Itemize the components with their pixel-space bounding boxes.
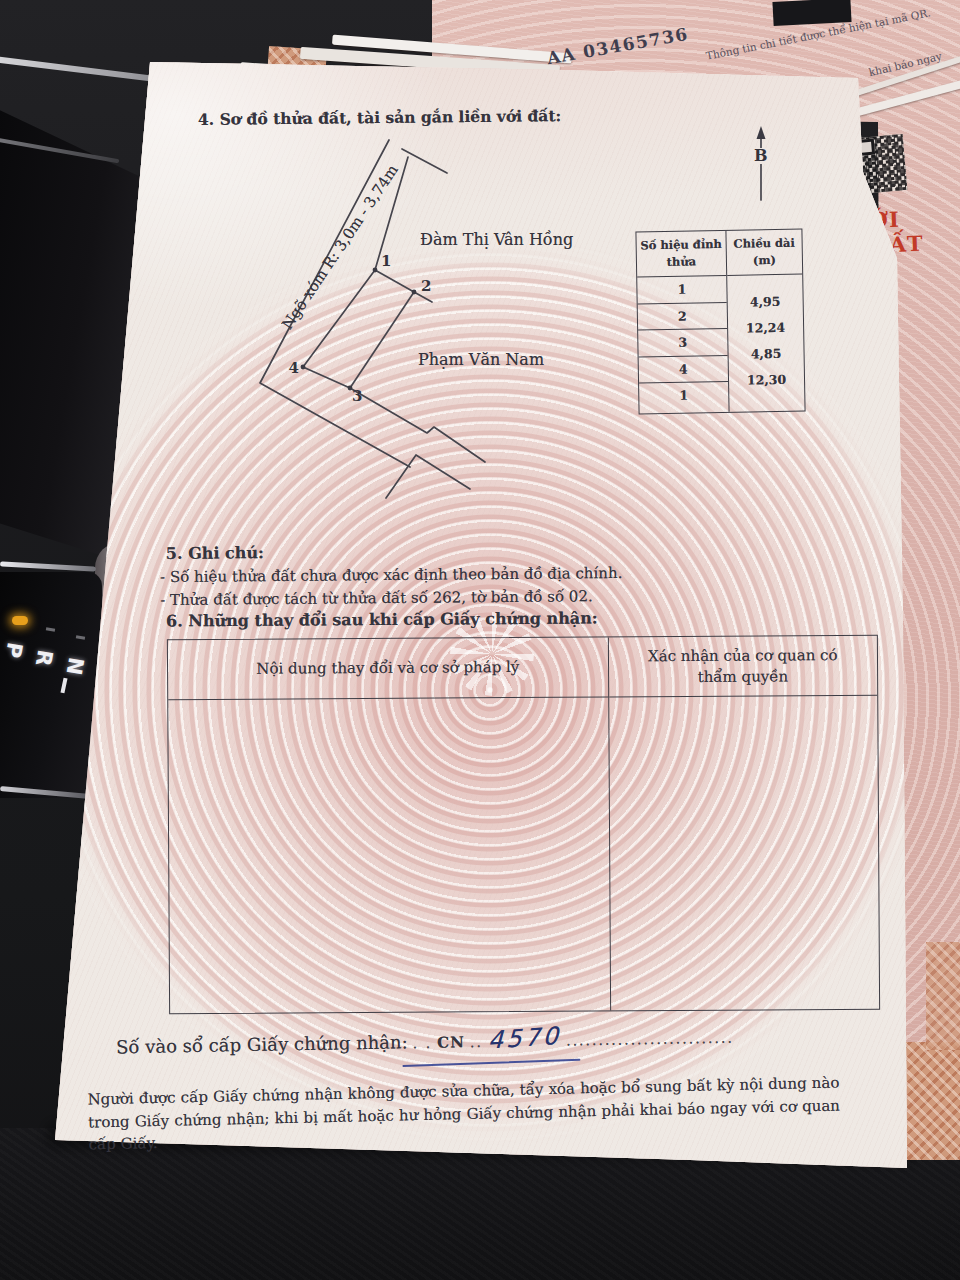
registry-label: Số vào sổ cấp Giấy chứng nhận: [116,1031,408,1057]
background-gap [772,0,851,26]
length-value: 12,30 [729,371,804,390]
registry-dot-leader: .......................... [566,1030,734,1049]
vertex-column: Số hiệu đỉnh thửa 1 2 3 4 1 [636,231,729,414]
section6-title: 6. Những thay đổi sau khi cấp Giấy chứng… [166,608,598,630]
neighbor-name-bottom: Phạm Văn Nam [418,350,544,369]
changes-content-header: Nội dung thay đổi và cơ sở pháp lý [168,637,608,700]
vertex-cell: 4 [639,355,728,383]
gear-label-n: N [61,655,88,676]
registry-predots: . . [413,1035,433,1051]
vertex-cell: 1 [637,276,726,304]
gear-panel-trim-top [0,561,96,571]
changes-content-column: Nội dung thay đổi và cơ sở pháp lý [168,637,611,1013]
length-column-header: Chiều dài (m) [726,230,802,276]
neighbor-name-top: Đàm Thị Vân Hồng [420,230,573,249]
section4-title: 4. Sơ đồ thửa đất, tài sản gắn liền với … [198,106,561,129]
gear-selector-panel [0,572,102,798]
section5-note-1: - Số hiệu thửa đất chưa được xác định th… [160,564,623,586]
registry-prefix: CN [437,1033,465,1051]
length-column: Chiều dài (m) 4,95 12,24 4,85 12,30 [726,230,804,412]
vertex-cell: 3 [638,329,727,357]
vertex-column-header: Số hiệu đỉnh thửa [636,231,726,278]
changes-confirmation-header: Xác nhận của cơ quan có thẩm quyền [608,636,877,698]
length-value: 12,24 [728,319,803,338]
length-value: 4,85 [728,345,803,364]
changes-table: Nội dung thay đổi và cơ sở pháp lý Xác n… [167,635,880,1014]
vertex-cell: 2 [638,302,727,330]
length-value: 4,95 [728,293,803,312]
photo-scene: P R N AA 03465736 Thông tin chi tiết đượ… [0,0,960,1280]
length-values: 4,95 12,24 4,85 12,30 [727,275,804,412]
section5-title: 5. Ghi chú: [166,540,623,563]
vertex-cell: 1 [639,382,728,409]
gear-indicator-lamp [12,616,28,625]
registry-middots: .. [470,1034,483,1050]
registry-number-handwritten: 4570 [487,1022,561,1055]
section5: 5. Ghi chú: - Số hiệu thửa đất chưa được… [160,540,623,609]
changes-confirmation-column: Xác nhận của cơ quan có thẩm quyền [608,636,879,1011]
back-sheet-border-pattern-2 [926,942,960,1050]
vertex-length-table: Số hiệu đỉnh thửa 1 2 3 4 1 Chiều dài (m… [635,229,805,415]
